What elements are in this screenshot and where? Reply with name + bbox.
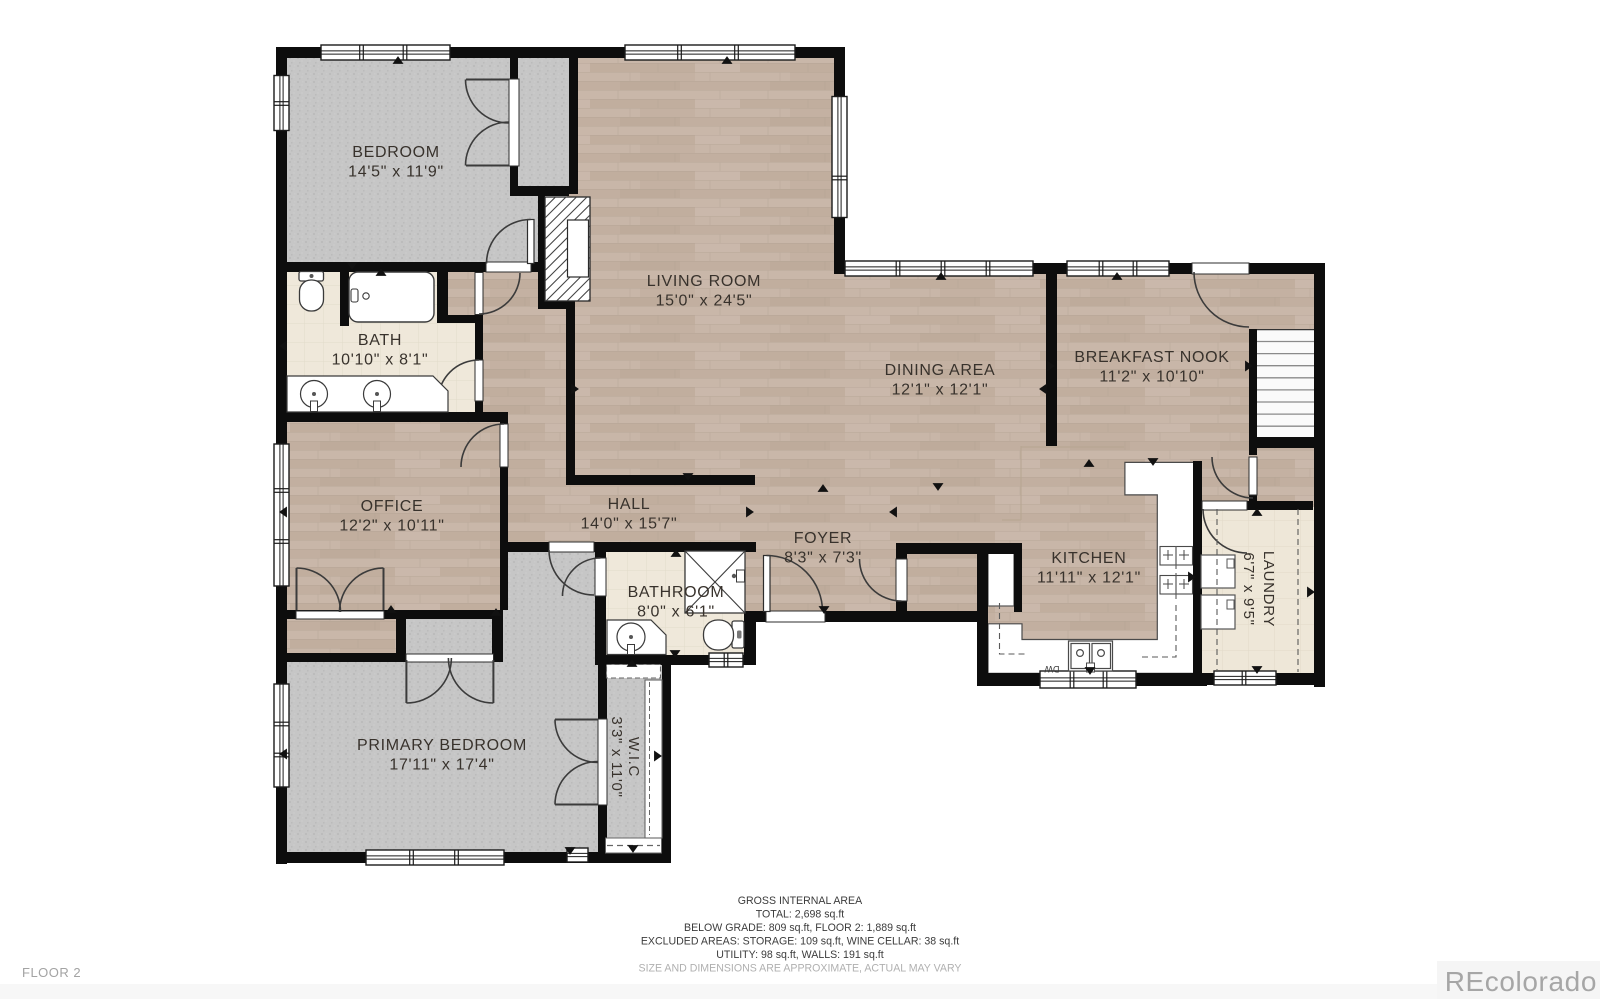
svg-text:SIZE AND DIMENSIONS ARE APPROX: SIZE AND DIMENSIONS ARE APPROXIMATE, ACT… (639, 963, 962, 975)
svg-text:REcolorado: REcolorado (1445, 966, 1597, 997)
svg-text:FLOOR 2: FLOOR 2 (22, 965, 81, 980)
svg-text:UTILITY: 98 sq.ft, WALLS: 191: UTILITY: 98 sq.ft, WALLS: 191 sq.ft (716, 949, 883, 961)
svg-text:DW: DW (1044, 664, 1059, 674)
svg-text:BELOW GRADE: 809 sq.ft, FLOOR: BELOW GRADE: 809 sq.ft, FLOOR 2: 1,889 s… (684, 922, 916, 934)
svg-text:EXCLUDED AREAS: STORAGE: 109 s: EXCLUDED AREAS: STORAGE: 109 sq.ft, WINE… (641, 936, 959, 948)
svg-text:TOTAL: 2,698 sq.ft: TOTAL: 2,698 sq.ft (756, 909, 845, 921)
svg-text:GROSS INTERNAL AREA: GROSS INTERNAL AREA (738, 895, 863, 907)
